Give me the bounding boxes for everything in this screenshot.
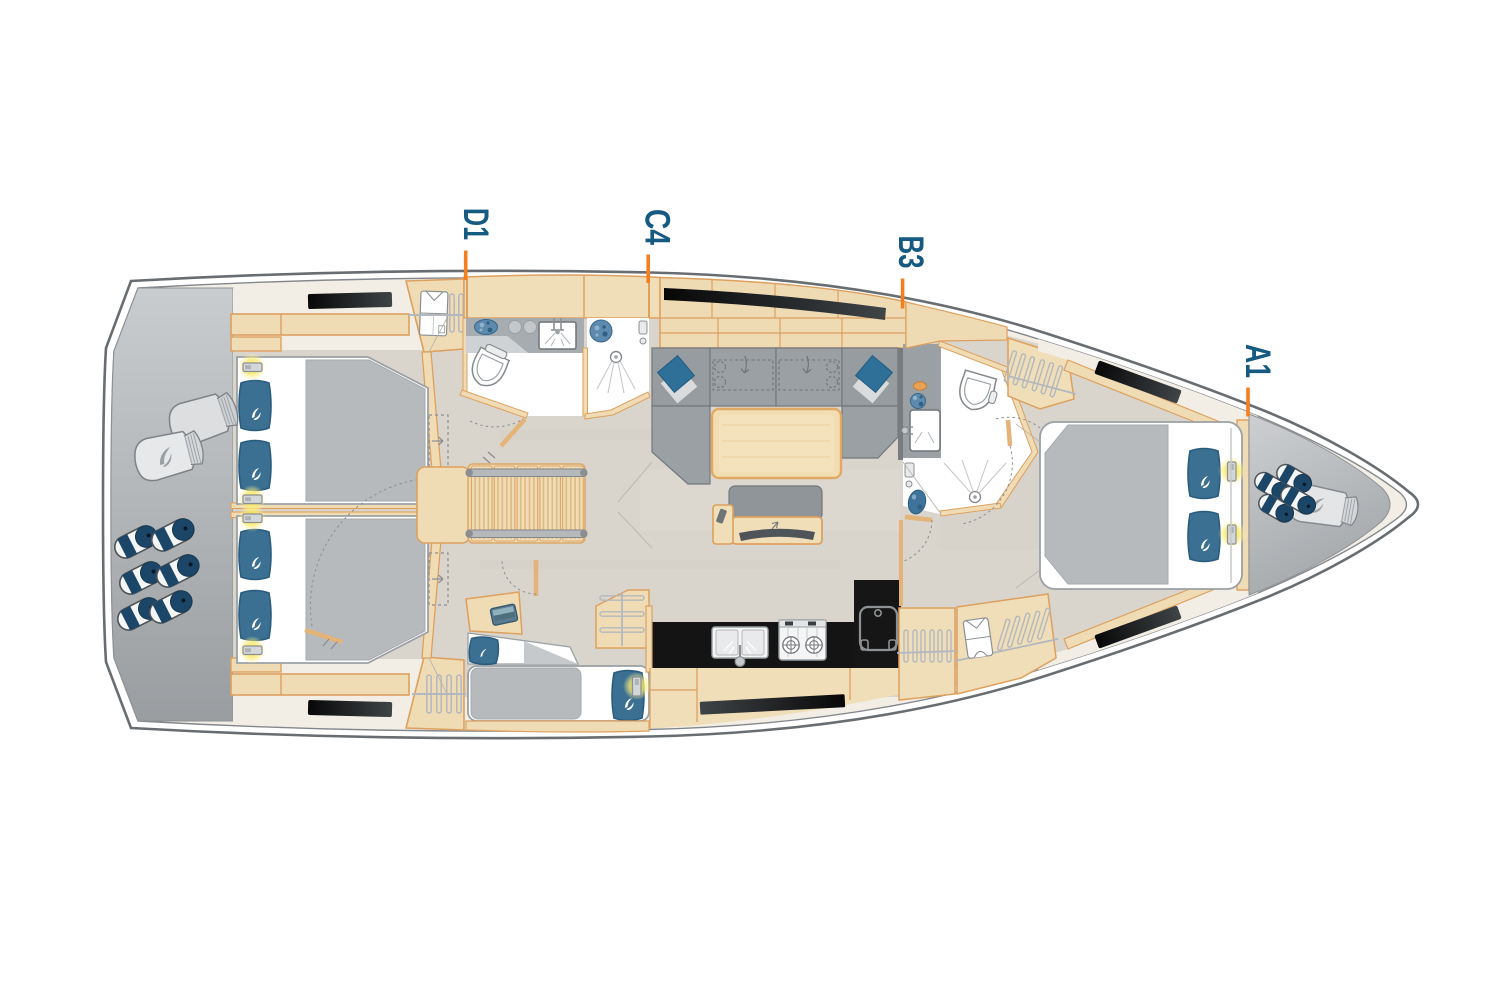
svg-text:A1: A1 [1238, 344, 1277, 378]
svg-text:C4: C4 [638, 209, 677, 245]
svg-text:B3: B3 [891, 236, 930, 269]
svg-text:D1: D1 [456, 208, 495, 240]
